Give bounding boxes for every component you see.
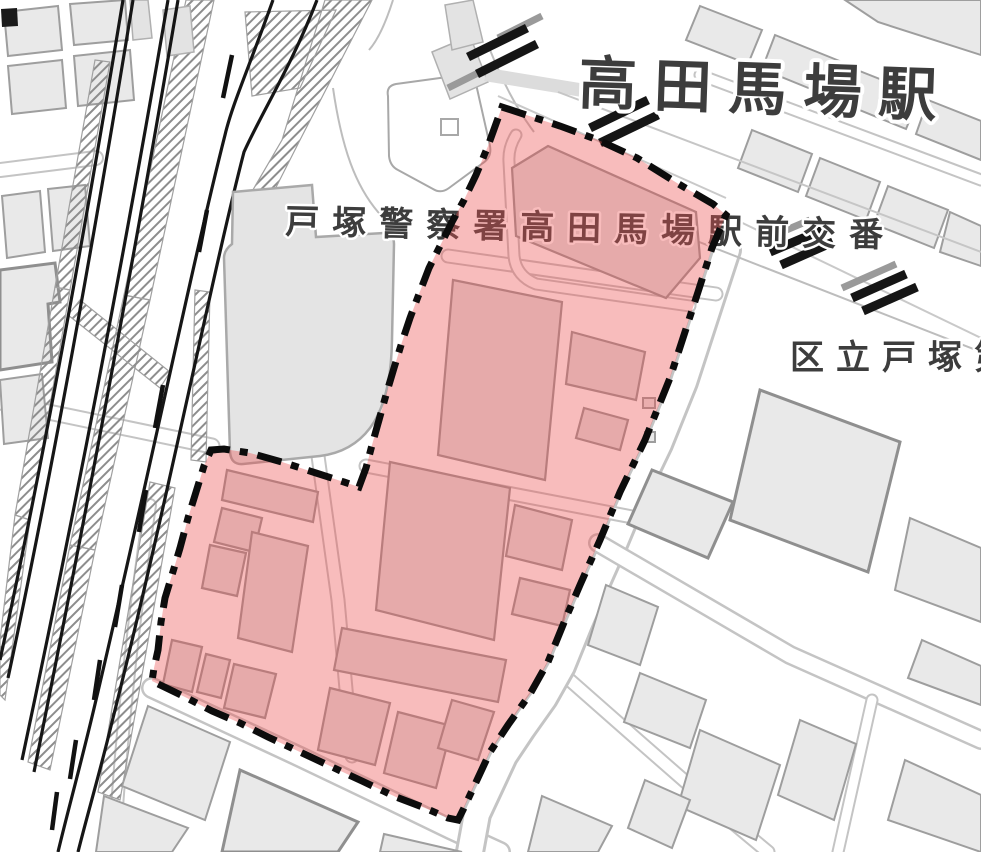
building [8,60,66,114]
rail-dash [94,660,100,700]
building [730,390,900,572]
plaza-edge [369,0,393,50]
building [908,640,981,705]
rail-dash [70,740,76,779]
building [628,780,690,848]
rail-dash [115,585,122,627]
school-label: 区立戸塚第 [790,339,981,377]
station-structure [445,0,483,50]
platform-building [163,6,194,56]
rail-dash [52,792,57,830]
rail-platform-hatch [28,545,95,770]
map-canvas: 戸塚警察署高田馬場駅前交番 高田馬場駅 区立戸塚第 [0,0,981,852]
building [528,796,612,852]
city-map: 戸塚警察署高田馬場駅前交番 高田馬場駅 区立戸塚第 [0,0,981,852]
building [2,191,45,258]
rail-dash [199,210,207,252]
building [895,518,981,622]
building [845,0,981,55]
station-name-label: 高田馬場駅 [578,51,955,129]
building [678,730,780,840]
building [738,130,812,192]
building [888,760,981,852]
map-symbol [1,8,18,27]
rail-dash [223,55,232,98]
rotary-island [441,119,458,135]
